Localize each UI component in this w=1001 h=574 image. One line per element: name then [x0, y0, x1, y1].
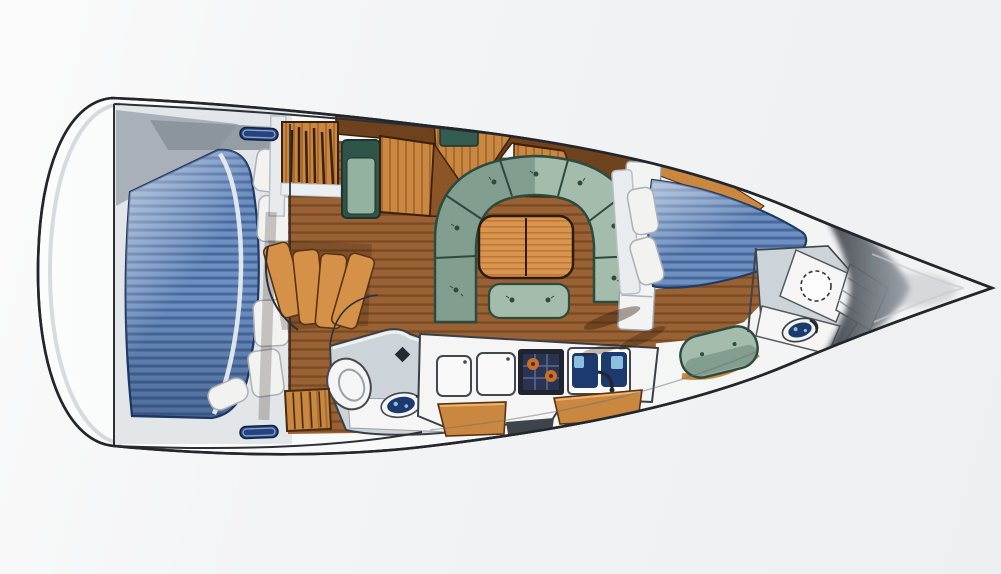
double-sink — [568, 348, 630, 394]
fridge-lid-latch — [506, 357, 510, 361]
chart-table — [380, 136, 434, 216]
deck-hatch — [512, 117, 555, 133]
hanging-locker — [285, 389, 331, 431]
aft-bench — [489, 284, 569, 318]
fridge-lid-latch — [463, 360, 467, 364]
floorplan-svg — [0, 0, 1001, 574]
stove — [518, 349, 564, 395]
fwd-toilet — [801, 271, 831, 301]
deck-hatch — [240, 425, 278, 438]
nav-seat-cushion — [347, 158, 375, 214]
galley-locker-front — [438, 402, 506, 436]
deck-hatch — [240, 127, 278, 140]
boat-floorplan-illustration — [0, 0, 1001, 574]
